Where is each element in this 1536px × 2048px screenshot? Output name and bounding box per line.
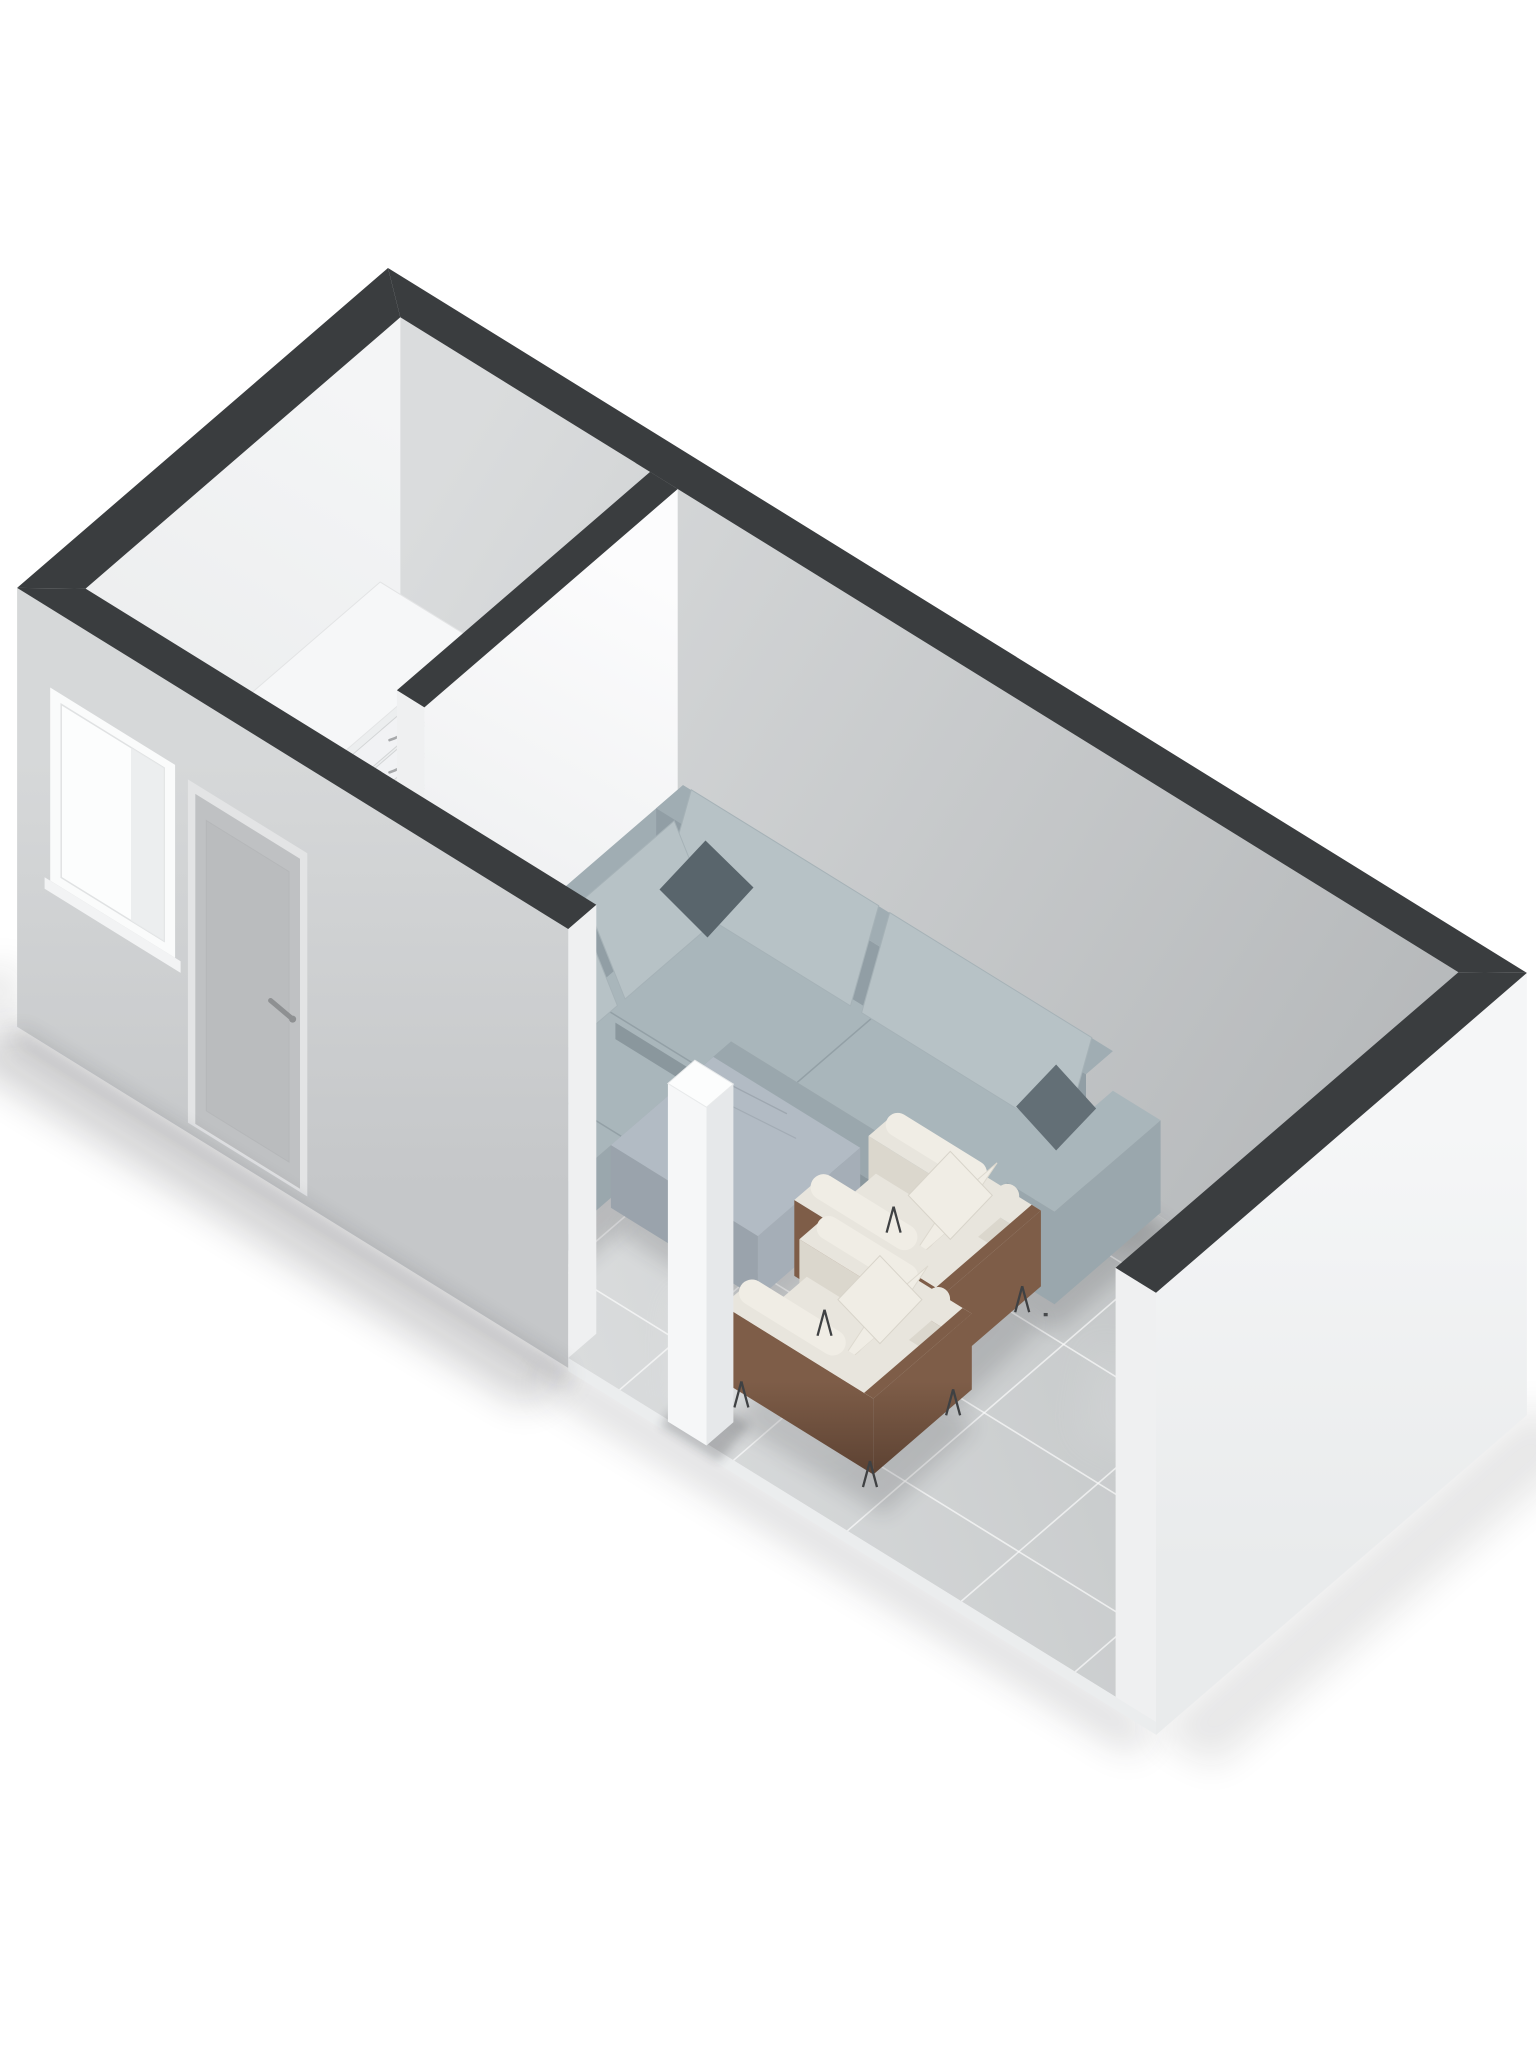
floorplan-3d-render [0, 0, 1536, 2048]
scene-canvas [0, 0, 1536, 2048]
